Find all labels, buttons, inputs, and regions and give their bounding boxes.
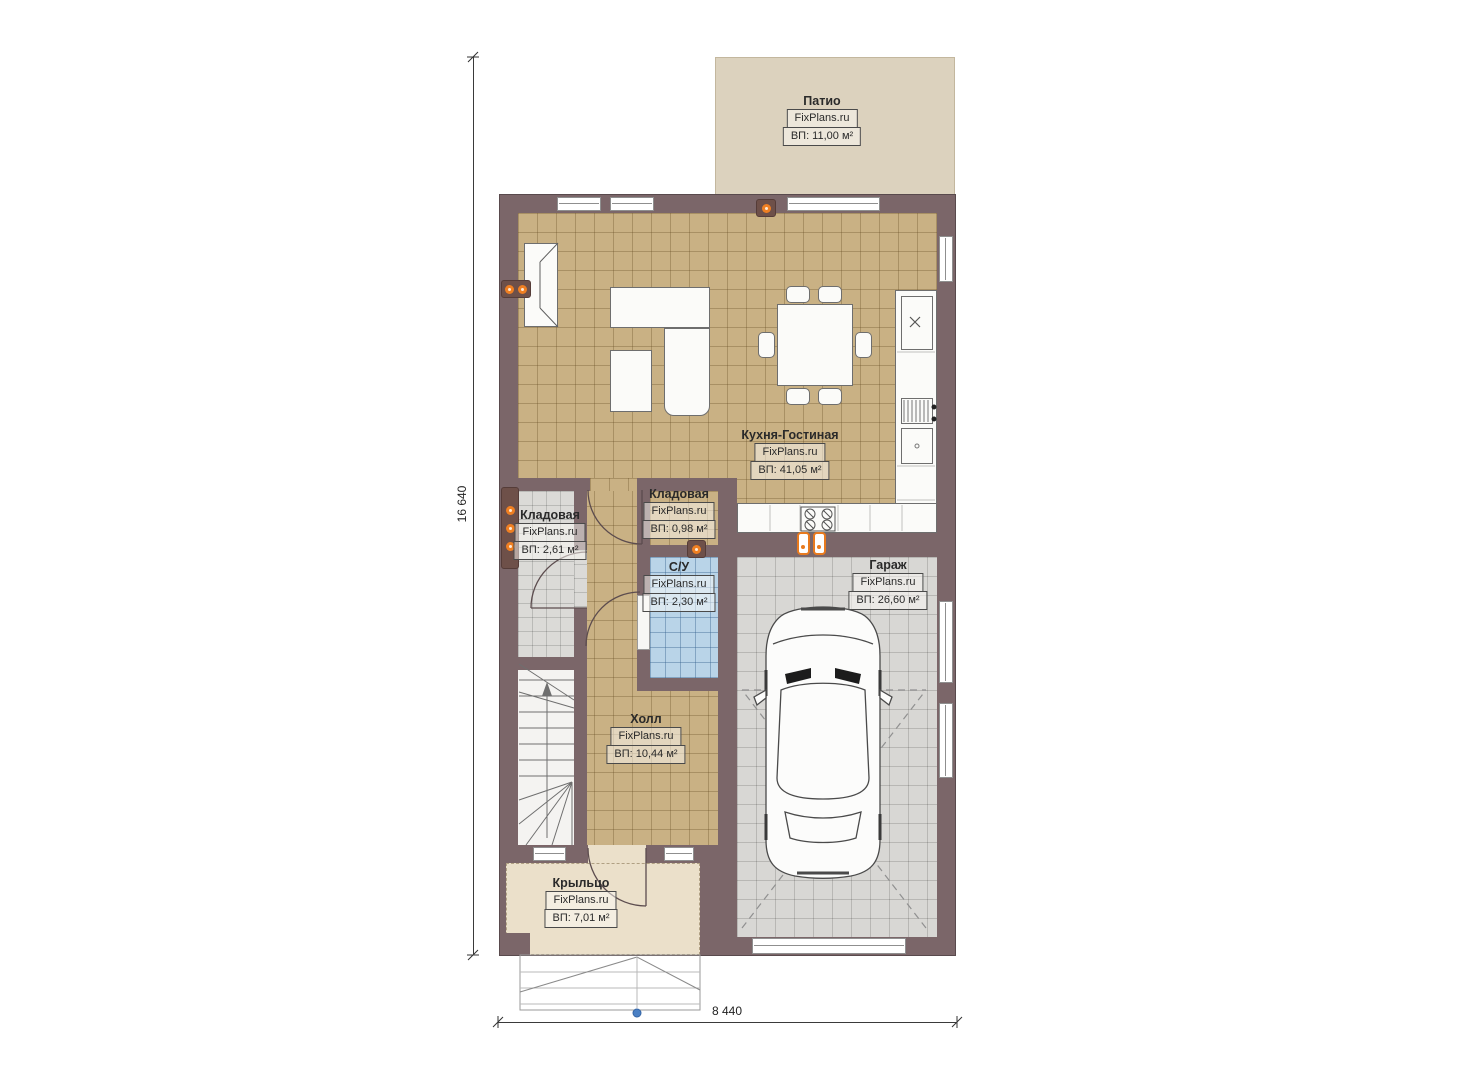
room-area: ВП: 10,44 м² <box>606 745 685 764</box>
window-garage-2 <box>939 703 953 778</box>
room-brand: FixPlans.ru <box>643 502 714 521</box>
room-name: Кладовая <box>649 487 709 501</box>
room-name: С/У <box>669 560 689 574</box>
window-top-2 <box>610 197 654 211</box>
floor-plan-canvas: Патио FixPlans.ru ВП: 11,00 м² Кухня-Гос… <box>0 0 1474 1080</box>
room-area: ВП: 2,61 м² <box>513 541 586 560</box>
doorway-entrance <box>588 845 646 863</box>
room-name: Кухня-Гостиная <box>741 428 838 442</box>
room-brand: FixPlans.ru <box>852 573 923 592</box>
room-name: Кладовая <box>520 508 580 522</box>
sink-cabinet <box>901 296 933 350</box>
socket-marker <box>687 540 706 558</box>
room-label-porch: Крыльцо FixPlans.ru ВП: 7,01 м² <box>544 876 617 928</box>
window-bottom-2 <box>664 847 694 861</box>
room-area: ВП: 26,60 м² <box>848 591 927 610</box>
room-name: Холл <box>630 712 661 726</box>
porch-steps-canopy <box>520 955 700 1017</box>
window-garage-1 <box>939 601 953 683</box>
dining-chair <box>758 332 775 358</box>
coffee-table <box>610 350 652 412</box>
socket-dot-icon <box>518 285 527 294</box>
oven-appliance <box>901 398 933 424</box>
dining-chair <box>818 388 842 405</box>
patio-sliding-door <box>787 197 880 211</box>
socket-dot-icon <box>762 204 771 213</box>
room-label-pantry-small: Кладовая FixPlans.ru ВП: 0,98 м² <box>642 487 715 539</box>
dining-chair <box>786 388 810 405</box>
room-name: Гараж <box>869 558 906 572</box>
room-brand: FixPlans.ru <box>610 727 681 746</box>
window-right-kitchen <box>939 236 953 282</box>
room-area: ВП: 2,30 м² <box>642 593 715 612</box>
socket-dot-icon <box>505 285 514 294</box>
room-label-garage: Гараж FixPlans.ru ВП: 26,60 м² <box>848 558 927 610</box>
room-brand: FixPlans.ru <box>514 523 585 542</box>
floor-outlet <box>813 532 826 555</box>
base-cabinet <box>901 428 933 464</box>
room-area: ВП: 11,00 м² <box>783 127 861 146</box>
room-label-pantry: Кладовая FixPlans.ru ВП: 2,61 м² <box>513 508 586 560</box>
sofa-side <box>664 328 710 416</box>
room-area: ВП: 0,98 м² <box>642 520 715 539</box>
dining-table <box>777 304 853 386</box>
dimension-line-left <box>473 57 474 955</box>
node-marker <box>633 1009 641 1017</box>
wall-pantry-bottom <box>500 657 587 670</box>
room-brand: FixPlans.ru <box>786 109 857 128</box>
sofa-top <box>610 287 710 328</box>
porch-pier-left <box>503 933 530 955</box>
garage-floor <box>737 557 937 937</box>
room-brand: FixPlans.ru <box>545 891 616 910</box>
room-name: Крыльцо <box>553 876 610 890</box>
kitchen-counter-bottom <box>737 503 937 533</box>
socket-marker-pair <box>501 280 531 298</box>
room-label-hall: Холл FixPlans.ru ВП: 10,44 м² <box>606 712 685 764</box>
room-area: ВП: 7,01 м² <box>544 909 617 928</box>
doorway-kitchen-hall <box>590 478 637 491</box>
floor-outlet <box>797 532 810 555</box>
room-label-bathroom: С/У FixPlans.ru ВП: 2,30 м² <box>642 560 715 612</box>
room-name: Патио <box>803 94 840 108</box>
room-brand: FixPlans.ru <box>754 443 825 462</box>
kitchen-living-floor <box>518 213 937 503</box>
window-bottom-1 <box>533 847 566 861</box>
wall-garage-top <box>737 533 955 557</box>
dimension-label-height: 16 640 <box>455 468 469 540</box>
garage-door <box>752 938 906 954</box>
dining-chair <box>855 332 872 358</box>
room-label-patio: Патио FixPlans.ru ВП: 11,00 м² <box>783 94 861 146</box>
dimension-label-width: 8 440 <box>697 1004 757 1018</box>
dining-chair <box>818 286 842 303</box>
dimension-line-bottom <box>498 1022 957 1023</box>
stairs-floor <box>518 670 574 845</box>
window-top-1 <box>557 197 601 211</box>
dining-chair <box>786 286 810 303</box>
socket-marker <box>756 199 776 217</box>
wall-porch-right <box>700 845 737 955</box>
room-brand: FixPlans.ru <box>643 575 714 594</box>
socket-dot-icon <box>692 545 701 554</box>
wall-bath-bottom <box>637 678 718 691</box>
room-area: ВП: 41,05 м² <box>750 461 829 480</box>
room-label-kitchen-living: Кухня-Гостиная FixPlans.ru ВП: 41,05 м² <box>741 428 838 480</box>
